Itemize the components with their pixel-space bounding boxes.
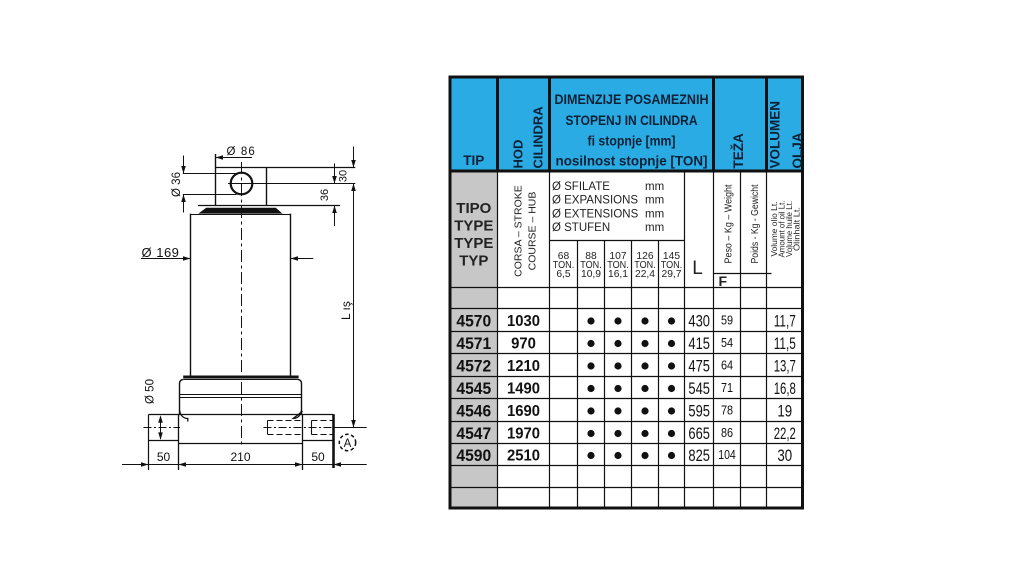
svg-text:VOLUMEN: VOLUMEN xyxy=(768,101,783,169)
svg-text:19: 19 xyxy=(777,402,792,421)
svg-text:mm: mm xyxy=(645,195,664,207)
svg-text:29,7: 29,7 xyxy=(661,269,681,280)
svg-text:104: 104 xyxy=(718,448,736,462)
svg-text:16,8: 16,8 xyxy=(774,379,796,398)
svg-text:A: A xyxy=(344,438,352,450)
svg-text:11,5: 11,5 xyxy=(774,334,796,353)
svg-text:30: 30 xyxy=(337,170,349,182)
svg-text:50: 50 xyxy=(311,450,325,464)
svg-text:4590: 4590 xyxy=(456,446,491,465)
svg-text:HOD: HOD xyxy=(511,140,526,169)
svg-text:Ø EXTENSIONS: Ø EXTENSIONS xyxy=(552,208,639,220)
svg-text:OLJA: OLJA xyxy=(790,132,805,168)
svg-text:mm: mm xyxy=(645,181,664,193)
svg-text:430: 430 xyxy=(688,312,710,331)
svg-text:1690: 1690 xyxy=(507,403,540,420)
svg-text:595: 595 xyxy=(688,402,710,421)
svg-text:1030: 1030 xyxy=(507,313,540,330)
svg-text:1970: 1970 xyxy=(507,425,540,442)
svg-text:210: 210 xyxy=(230,450,250,464)
svg-text:22,2: 22,2 xyxy=(774,424,796,443)
svg-text:TEŽA: TEŽA xyxy=(731,133,746,168)
svg-text:fi stopnje [mm]: fi stopnje [mm] xyxy=(588,133,676,149)
svg-text:TYPE: TYPE xyxy=(454,235,493,252)
svg-text:54: 54 xyxy=(721,336,733,350)
svg-text:Ø 36: Ø 36 xyxy=(171,172,183,197)
svg-text:825: 825 xyxy=(688,446,710,465)
svg-text:COURSE – HUB: COURSE – HUB xyxy=(527,192,539,271)
svg-text:4547: 4547 xyxy=(456,424,491,443)
svg-text:L: L xyxy=(692,258,703,279)
svg-text:TYP: TYP xyxy=(459,253,488,270)
svg-text:1490: 1490 xyxy=(507,380,540,397)
svg-text:30: 30 xyxy=(777,446,792,465)
svg-text:1210: 1210 xyxy=(507,358,540,375)
svg-text:415: 415 xyxy=(688,334,710,353)
svg-text:CILINDRA: CILINDRA xyxy=(531,106,546,169)
svg-text:11,7: 11,7 xyxy=(774,312,796,331)
svg-text:970: 970 xyxy=(511,335,536,352)
svg-text:mm: mm xyxy=(645,222,664,234)
svg-text:13,7: 13,7 xyxy=(774,357,796,376)
svg-text:36: 36 xyxy=(319,189,331,201)
svg-text:Ø 86: Ø 86 xyxy=(227,146,256,158)
svg-text:64: 64 xyxy=(721,359,733,373)
svg-text:545: 545 xyxy=(688,379,710,398)
svg-text:TYPE: TYPE xyxy=(454,218,493,235)
svg-text:DIMENZIJE POSAMEZNIH: DIMENZIJE POSAMEZNIH xyxy=(555,91,709,107)
svg-text:Poids - Kg - Gewicht: Poids - Kg - Gewicht xyxy=(750,184,761,263)
svg-text:Ø 169: Ø 169 xyxy=(142,245,180,260)
svg-text:475: 475 xyxy=(688,357,710,376)
svg-text:50: 50 xyxy=(157,450,171,464)
svg-text:nosilnost stopnje [TON]: nosilnost stopnje [TON] xyxy=(556,153,708,169)
svg-text:mm: mm xyxy=(645,208,664,220)
svg-text:10,9: 10,9 xyxy=(581,269,601,280)
svg-text:59: 59 xyxy=(721,314,733,328)
svg-text:86: 86 xyxy=(721,426,733,440)
svg-text:665: 665 xyxy=(688,424,710,443)
svg-text:22,4: 22,4 xyxy=(635,269,655,280)
svg-text:STOPENJ IN CILINDRA: STOPENJ IN CILINDRA xyxy=(566,112,698,128)
svg-text:4570: 4570 xyxy=(456,312,491,331)
svg-text:L ış: L ış xyxy=(339,301,353,320)
svg-text:Ø 50: Ø 50 xyxy=(145,379,157,404)
svg-text:CORSA – STROKE: CORSA – STROKE xyxy=(513,185,525,277)
svg-text:4546: 4546 xyxy=(456,402,491,421)
svg-text:78: 78 xyxy=(721,404,733,418)
svg-text:6,5: 6,5 xyxy=(556,269,571,280)
svg-text:4572: 4572 xyxy=(456,357,491,376)
svg-text:2510: 2510 xyxy=(507,447,540,464)
svg-text:TIP: TIP xyxy=(463,153,484,168)
svg-text:16,1: 16,1 xyxy=(608,269,628,280)
svg-text:71: 71 xyxy=(721,381,733,395)
svg-text:F: F xyxy=(719,273,728,289)
svg-text:4571: 4571 xyxy=(456,334,491,353)
svg-text:Peso – Kg – Weight: Peso – Kg – Weight xyxy=(724,184,735,263)
svg-text:Ø SFILATE: Ø SFILATE xyxy=(552,181,610,193)
svg-text:TIPO: TIPO xyxy=(456,200,491,217)
svg-text:Ø STUFEN: Ø STUFEN xyxy=(552,222,610,234)
svg-text:4545: 4545 xyxy=(456,379,491,398)
svg-text:Ø EXPANSIONS: Ø EXPANSIONS xyxy=(552,195,638,207)
svg-text:Ölinhalt Lt.: Ölinhalt Lt. xyxy=(792,207,802,251)
